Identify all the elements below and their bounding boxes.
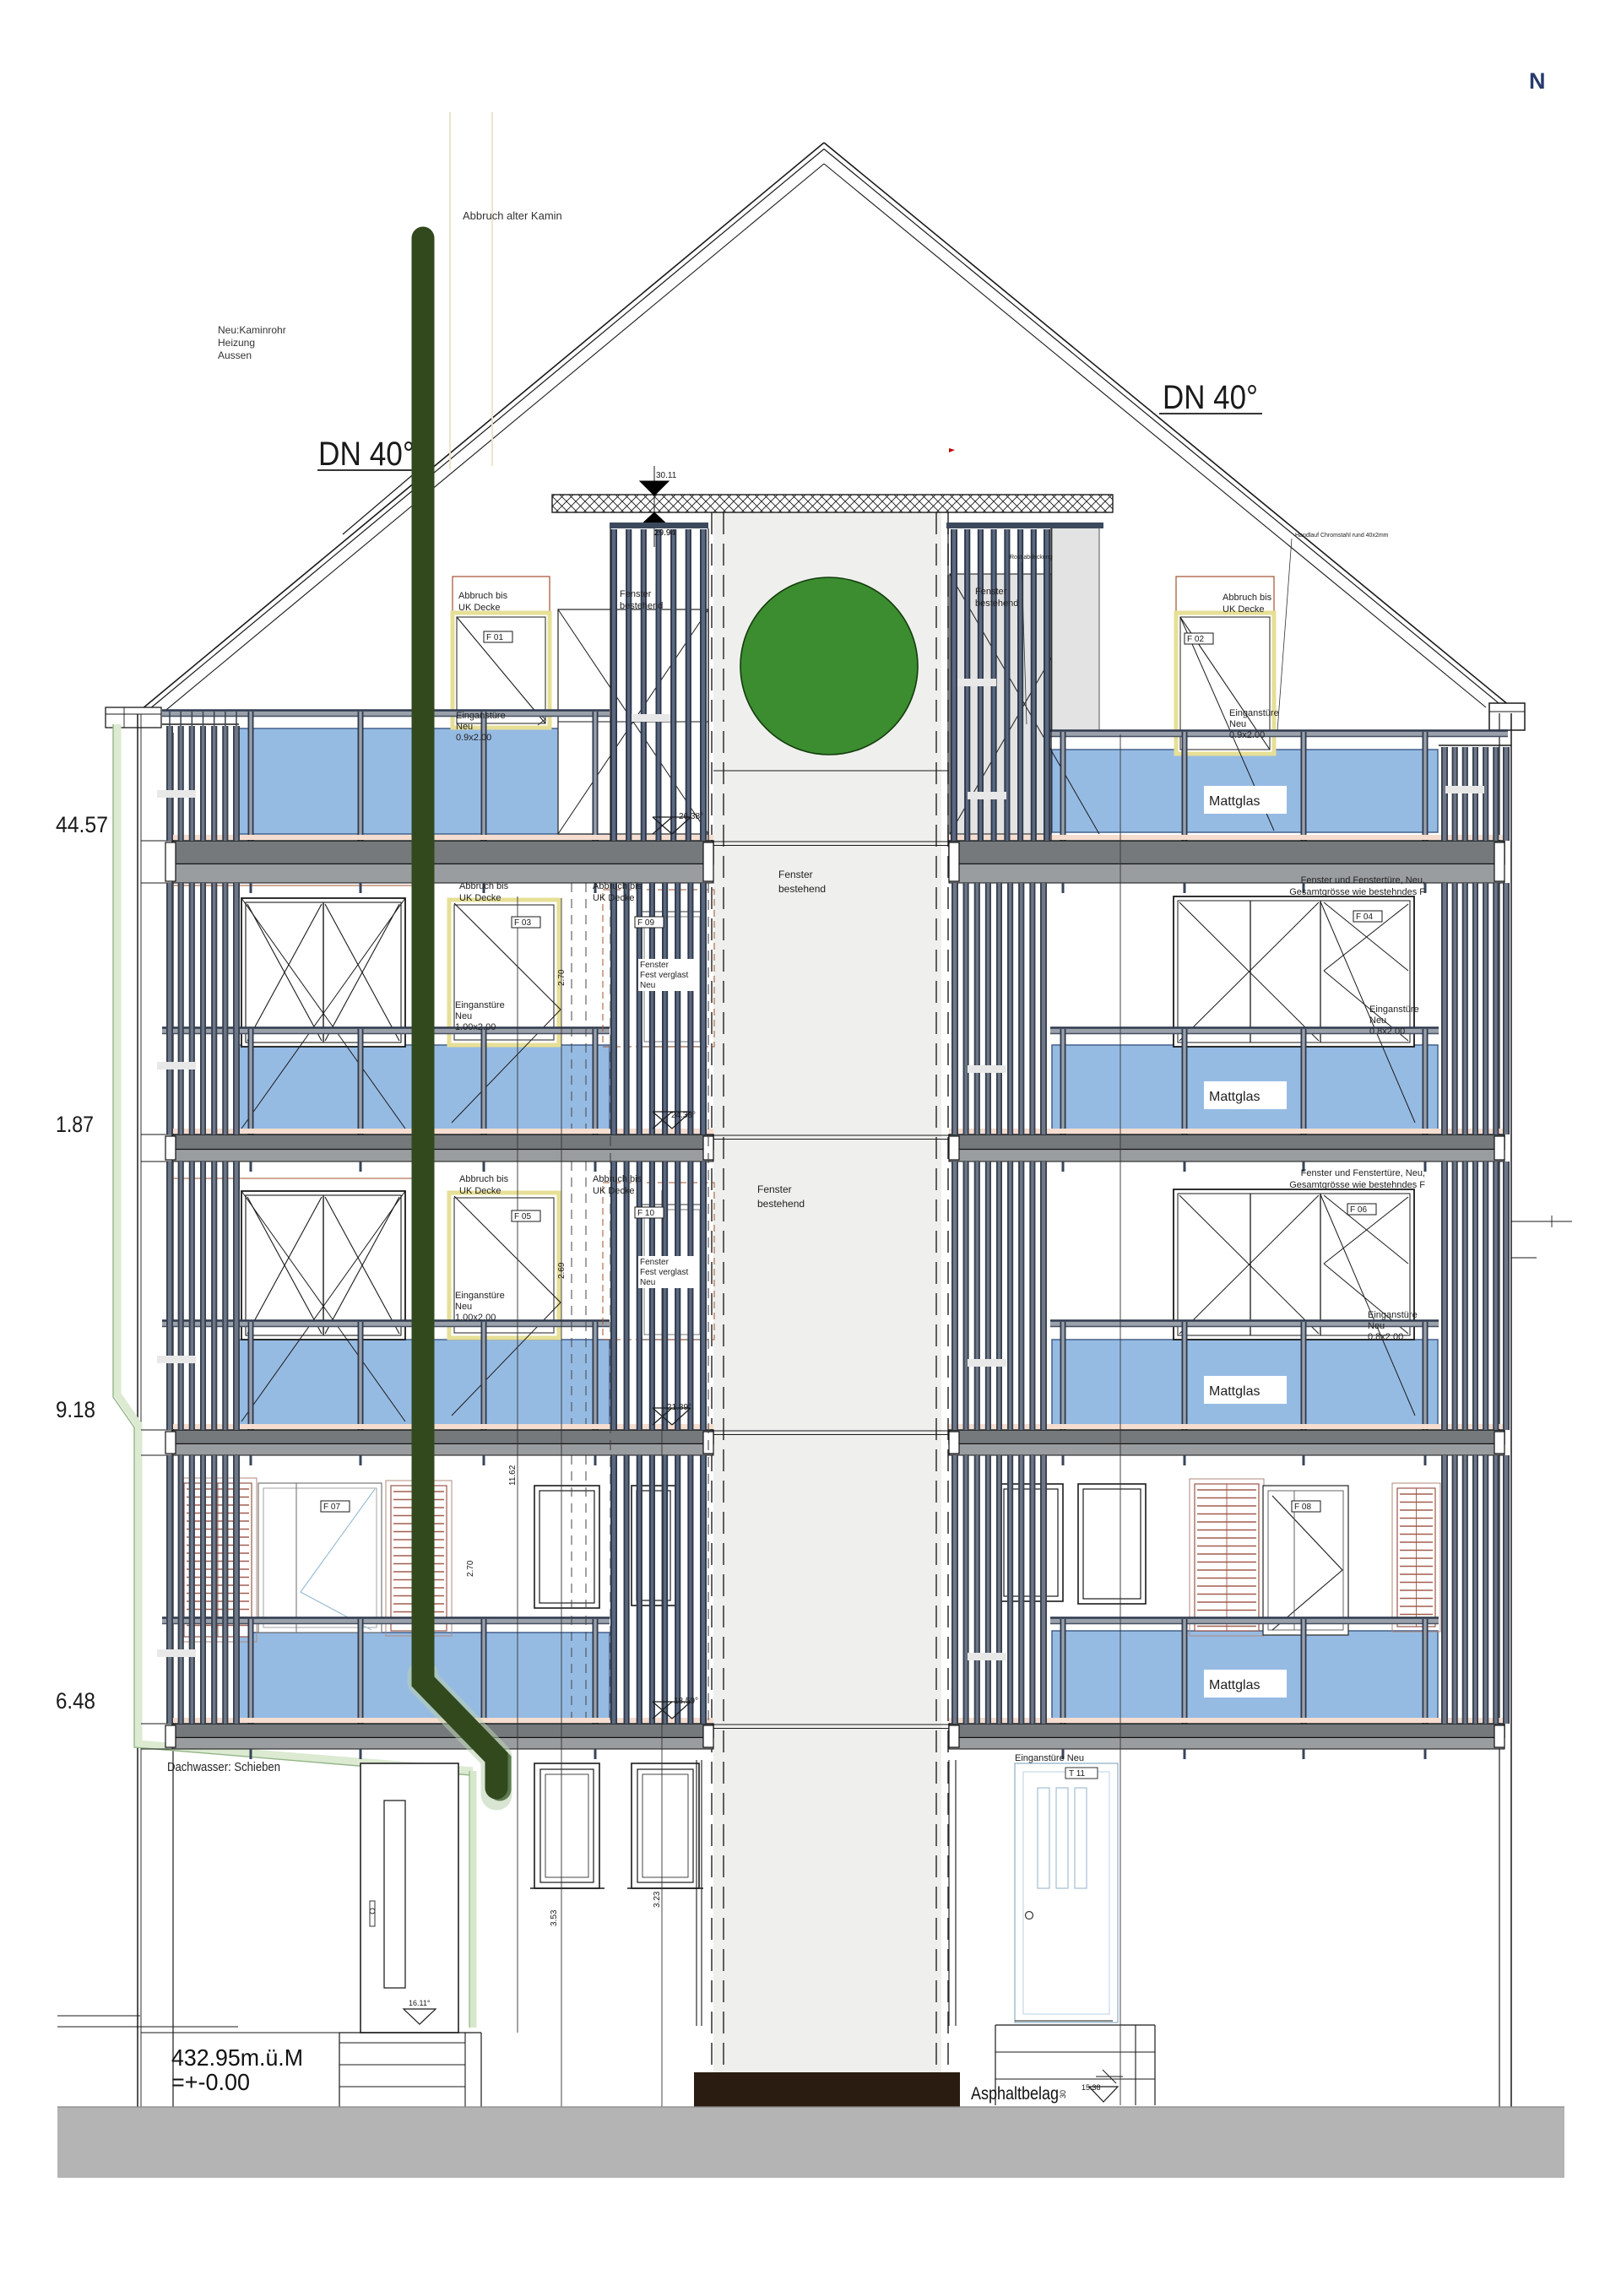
svg-text:Einganstüre: Einganstüre: [1369, 1004, 1419, 1015]
svg-text:Einganstüre: Einganstüre: [1229, 708, 1279, 718]
svg-text:2.69: 2.69: [557, 1262, 567, 1279]
svg-text:F 05: F 05: [514, 1212, 531, 1221]
svg-text:Fenster: Fenster: [640, 961, 670, 970]
svg-text:F 09: F 09: [637, 918, 654, 928]
svg-text:Mattglas: Mattglas: [1209, 1384, 1260, 1399]
svg-text:Gesamtgrösse wie bestehndes F: Gesamtgrösse wie bestehndes F: [1289, 1180, 1425, 1190]
svg-text:26.38°: 26.38°: [679, 812, 703, 821]
svg-text:21.89°: 21.89°: [667, 1403, 691, 1412]
svg-text:F 01: F 01: [486, 633, 503, 642]
svg-text:Abbruch bis: Abbruch bis: [593, 1174, 642, 1184]
svg-text:Neu: Neu: [456, 722, 473, 732]
svg-text:Gesamtgrösse wie bestehndes F: Gesamtgrösse wie bestehndes F: [1289, 887, 1425, 897]
svg-text:11.62: 11.62: [508, 1465, 518, 1486]
svg-text:6.48: 6.48: [56, 1688, 95, 1714]
svg-text:Fenster: Fenster: [975, 587, 1007, 597]
svg-text:Abbruch bis: Abbruch bis: [458, 591, 508, 601]
svg-text:24.38°: 24.38°: [671, 1111, 696, 1120]
svg-text:Rost abdeckung: Rost abdeckung: [1010, 555, 1053, 560]
svg-text:UK Decke: UK Decke: [593, 1186, 635, 1196]
svg-text:F 10: F 10: [637, 1209, 654, 1218]
svg-text:Fenster: Fenster: [620, 589, 652, 599]
svg-text:bestehend: bestehend: [778, 883, 826, 895]
svg-text:Abbruch bis: Abbruch bis: [459, 881, 509, 891]
svg-text:F 04: F 04: [1356, 912, 1373, 922]
svg-text:3.23: 3.23: [653, 1891, 662, 1908]
svg-text:UK Decke: UK Decke: [458, 603, 501, 613]
svg-text:30: 30: [1059, 2090, 1067, 2098]
svg-text:Fest verglast: Fest verglast: [640, 971, 688, 980]
svg-text:44.57: 44.57: [56, 812, 108, 837]
svg-text:9.18: 9.18: [56, 1397, 95, 1422]
svg-text:Dachwasser: Schieben: Dachwasser: Schieben: [167, 1760, 280, 1774]
svg-text:Mattglas: Mattglas: [1209, 1090, 1260, 1104]
svg-text:Einganstüre: Einganstüre: [1368, 1310, 1418, 1320]
svg-text:Abbruch alter Kamin: Abbruch alter Kamin: [463, 209, 562, 222]
svg-text:18.59°: 18.59°: [674, 1697, 698, 1706]
svg-text:F 03: F 03: [514, 918, 531, 928]
svg-text:Abbruch bis: Abbruch bis: [459, 1174, 509, 1184]
svg-text:Mattglas: Mattglas: [1209, 1678, 1260, 1692]
svg-text:2.70: 2.70: [466, 1560, 475, 1577]
svg-text:Einganstüre Neu: Einganstüre Neu: [1015, 1753, 1084, 1763]
svg-text:Fest verglast: Fest verglast: [640, 1268, 688, 1277]
svg-text:0.9x2.00: 0.9x2.00: [456, 733, 491, 743]
svg-text:bestehend: bestehend: [620, 601, 663, 611]
svg-text:Neu: Neu: [1369, 1015, 1386, 1026]
svg-text:1.00x2.00: 1.00x2.00: [455, 1313, 496, 1323]
svg-text:0.8x2.00: 0.8x2.00: [1369, 1026, 1405, 1037]
svg-text:Fenster und Fenstertüre, Neu,: Fenster und Fenstertüre, Neu,: [1301, 875, 1425, 885]
svg-text:T 11: T 11: [1069, 1769, 1086, 1779]
svg-text:Neu: Neu: [640, 1278, 655, 1287]
svg-text:Einganstüre: Einganstüre: [455, 1000, 505, 1010]
svg-text:29.94: 29.94: [654, 528, 675, 538]
svg-text:3.53: 3.53: [550, 1909, 559, 1926]
svg-text:N: N: [1529, 68, 1546, 94]
svg-text:30.11: 30.11: [656, 471, 677, 480]
svg-text:Mattglas: Mattglas: [1209, 794, 1260, 809]
svg-text:Einganstüre: Einganstüre: [456, 711, 506, 721]
svg-text:1.87: 1.87: [56, 1112, 94, 1137]
svg-text:UK Decke: UK Decke: [459, 893, 501, 903]
svg-text:Asphaltbelag: Asphaltbelag: [971, 2084, 1059, 2104]
svg-text:bestehend: bestehend: [757, 1198, 805, 1210]
svg-text:F 02: F 02: [1187, 635, 1204, 644]
svg-text:Neu: Neu: [1368, 1321, 1385, 1331]
svg-text:DN 40°: DN 40°: [1163, 379, 1258, 416]
svg-text:0.8x2.00: 0.8x2.00: [1368, 1332, 1403, 1342]
svg-text:Handlauf Chromstahl rund 40x2m: Handlauf Chromstahl rund 40x2mm: [1295, 533, 1389, 539]
svg-text:=+-0.00: =+-0.00: [171, 2069, 250, 2095]
svg-text:Neu: Neu: [1229, 719, 1246, 729]
svg-text:16.11°: 16.11°: [409, 1999, 431, 2007]
svg-text:F 06: F 06: [1350, 1205, 1367, 1215]
svg-text:F 08: F 08: [1294, 1503, 1311, 1512]
svg-text:Heizung: Heizung: [218, 337, 255, 349]
svg-text:1.00x2.00: 1.00x2.00: [455, 1022, 496, 1032]
svg-text:Fenster: Fenster: [640, 1258, 670, 1267]
svg-text:Aussen: Aussen: [218, 349, 252, 361]
svg-text:15.38: 15.38: [1082, 2083, 1101, 2092]
svg-text:UK Decke: UK Decke: [459, 1186, 501, 1196]
svg-text:DN 40°: DN 40°: [318, 436, 415, 473]
svg-text:F 07: F 07: [323, 1503, 340, 1512]
svg-text:432.95m.ü.M: 432.95m.ü.M: [171, 2044, 303, 2071]
svg-text:Fenster: Fenster: [778, 869, 813, 880]
svg-text:Neu: Neu: [455, 1011, 472, 1021]
svg-text:Abbruch bis: Abbruch bis: [1223, 593, 1272, 603]
svg-text:Fenster und Fenstertüre, Neu,: Fenster und Fenstertüre, Neu,: [1301, 1168, 1425, 1178]
svg-text:bestehend: bestehend: [975, 598, 1018, 609]
svg-text:Neu: Neu: [455, 1302, 472, 1312]
svg-text:Neu:Kaminrohr: Neu:Kaminrohr: [218, 324, 286, 336]
svg-text:Abbruch bis: Abbruch bis: [593, 881, 642, 891]
svg-text:0.9x2.00: 0.9x2.00: [1229, 730, 1265, 740]
svg-text:2.70: 2.70: [557, 969, 567, 986]
svg-text:Neu: Neu: [640, 981, 655, 990]
svg-text:UK Decke: UK Decke: [1223, 604, 1265, 615]
svg-text:UK Decke: UK Decke: [593, 893, 635, 903]
svg-text:Fenster: Fenster: [757, 1183, 792, 1195]
svg-text:Einganstüre: Einganstüre: [455, 1291, 505, 1301]
